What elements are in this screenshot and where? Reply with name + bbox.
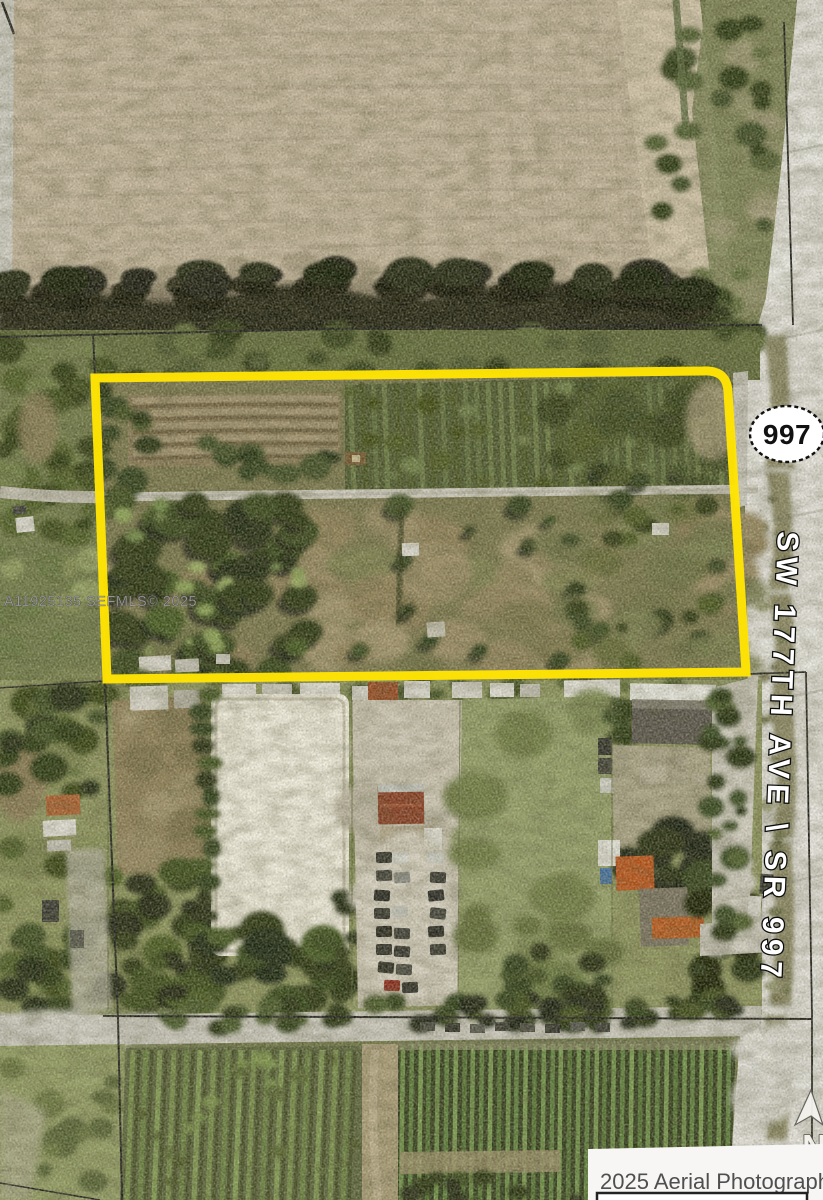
- svg-text:997: 997: [763, 419, 811, 450]
- svg-text:2025 Aerial Photograph: 2025 Aerial Photograph: [600, 1169, 823, 1194]
- svg-text:A11925135 SEFMLS© 2025: A11925135 SEFMLS© 2025: [4, 594, 197, 610]
